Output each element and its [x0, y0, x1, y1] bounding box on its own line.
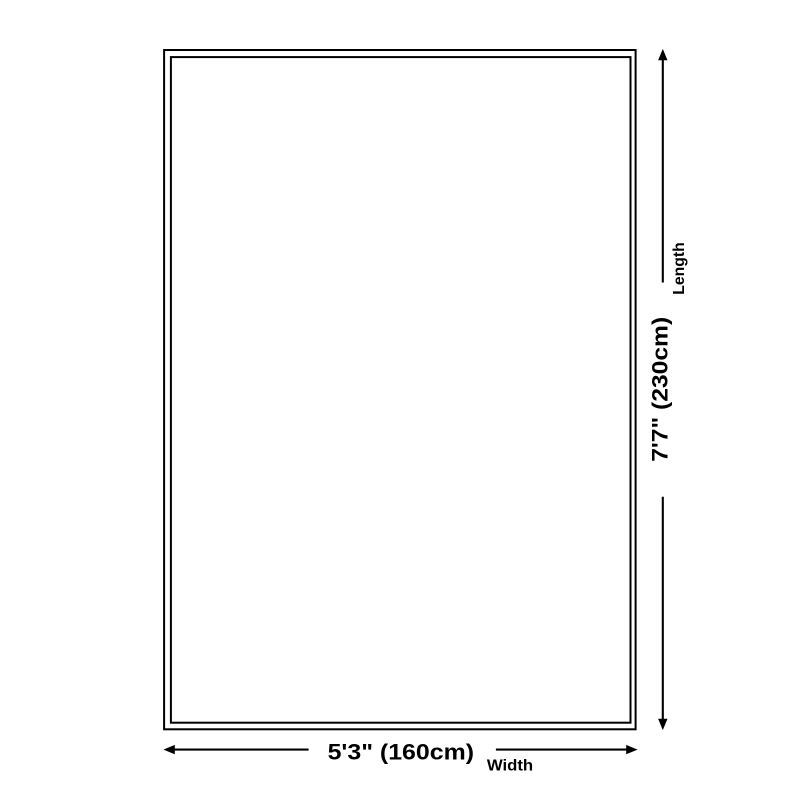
svg-text:Width: Width — [487, 758, 533, 775]
svg-text:7'7" (230cm): 7'7" (230cm) — [647, 317, 672, 462]
svg-text:5'3" (160cm): 5'3" (160cm) — [328, 739, 474, 764]
svg-text:Length: Length — [671, 242, 688, 295]
